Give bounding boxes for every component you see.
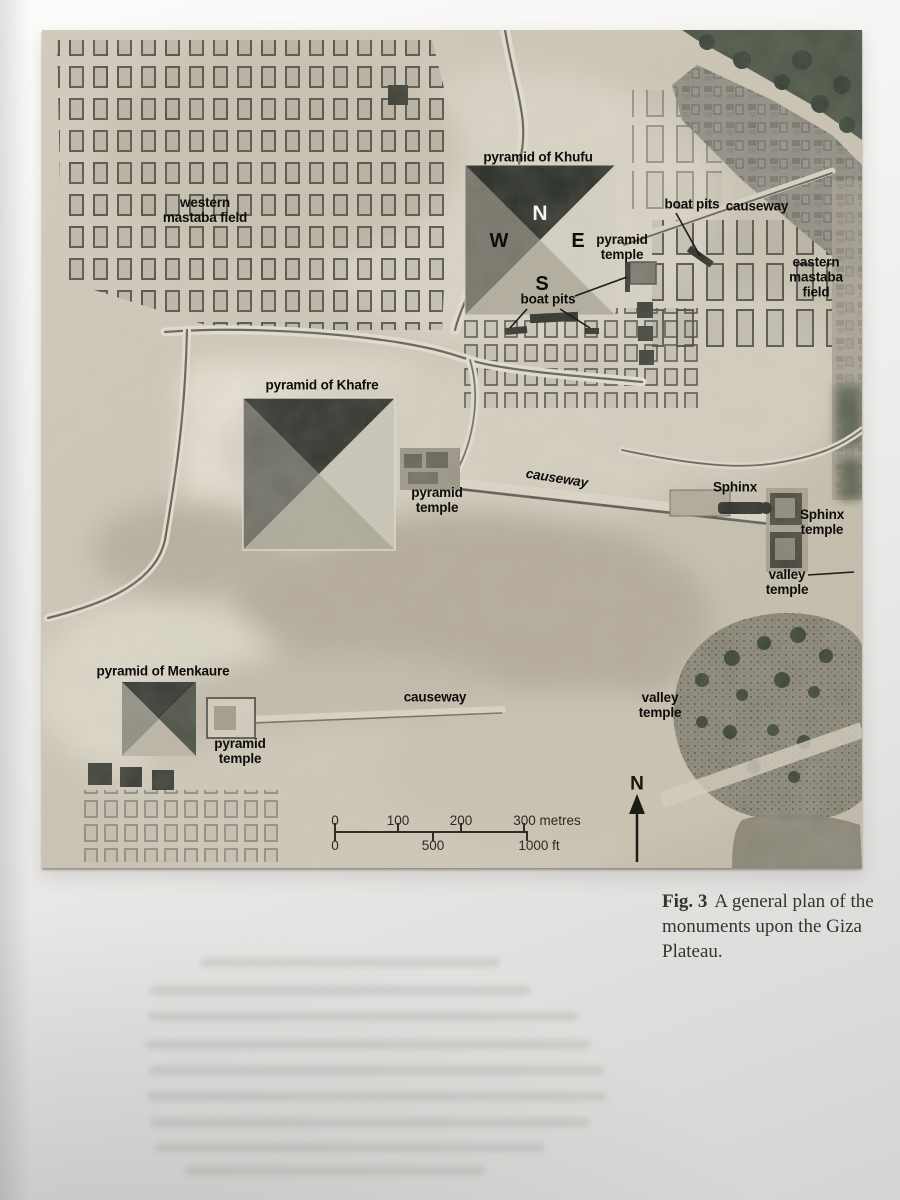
scale-label-100m: 100 bbox=[387, 814, 410, 828]
label-line: valley bbox=[639, 690, 682, 705]
scale-label-500ft: 500 bbox=[422, 839, 445, 853]
scale-label-300m: 300 metres bbox=[513, 814, 581, 828]
label-western-mastaba-field: western mastaba field bbox=[163, 195, 247, 225]
label-causeway-bottom: causeway bbox=[404, 690, 467, 705]
label-khufu-pyramid-temple: pyramid temple bbox=[596, 232, 647, 262]
label-line: mastaba field bbox=[163, 210, 247, 225]
book-page-photo: { "map": { "labels": { "khufu": "pyramid… bbox=[0, 0, 900, 1200]
label-line: eastern bbox=[789, 255, 843, 270]
label-causeway-top: causeway bbox=[726, 199, 789, 214]
label-boat-pits-south: boat pits bbox=[521, 292, 576, 307]
label-khafre-pyramid-temple: pyramid temple bbox=[411, 485, 462, 515]
label-line: temple bbox=[800, 522, 844, 537]
label-eastern-mastaba-field: eastern mastaba field bbox=[789, 255, 843, 300]
scale-label-1000ft: 1000 ft bbox=[518, 839, 559, 853]
label-line: pyramid bbox=[596, 232, 647, 247]
north-label: N bbox=[630, 775, 644, 794]
scale-label-0m: 0 bbox=[331, 814, 339, 828]
label-line: temple bbox=[596, 247, 647, 262]
label-line: temple bbox=[214, 751, 265, 766]
compass-east: E bbox=[571, 231, 584, 251]
compass-north: N bbox=[532, 204, 547, 224]
page-edge-shading bbox=[0, 0, 30, 1200]
label-line: temple bbox=[411, 500, 462, 515]
label-line: mastaba bbox=[789, 270, 843, 285]
scale-label-0ft: 0 bbox=[331, 839, 339, 853]
label-line: pyramid bbox=[214, 736, 265, 751]
label-line: valley bbox=[766, 567, 809, 582]
label-pyramid-of-menkaure: pyramid of Menkaure bbox=[97, 664, 230, 679]
compass-west: W bbox=[490, 231, 509, 251]
figure-caption: Fig. 3A general plan of the monuments up… bbox=[662, 889, 888, 964]
label-boat-pits-top: boat pits bbox=[665, 197, 720, 212]
label-valley-temple-bottom: valley temple bbox=[639, 690, 682, 720]
aerial-map-figure: pyramid of Khufu western mastaba field b… bbox=[42, 30, 862, 868]
label-line: pyramid bbox=[411, 485, 462, 500]
label-pyramid-of-khafre: pyramid of Khafre bbox=[266, 378, 379, 393]
label-line: field bbox=[789, 285, 843, 300]
label-line: Sphinx bbox=[800, 507, 844, 522]
scale-label-200m: 200 bbox=[450, 814, 473, 828]
terrain-svg bbox=[42, 30, 862, 868]
label-valley-temple-right: valley temple bbox=[766, 567, 809, 597]
label-line: temple bbox=[639, 705, 682, 720]
caption-fig-label: Fig. 3 bbox=[662, 891, 714, 912]
label-menkaure-pyramid-temple: pyramid temple bbox=[214, 736, 265, 766]
label-sphinx-temple: Sphinx temple bbox=[800, 507, 844, 537]
label-sphinx: Sphinx bbox=[713, 480, 757, 495]
label-line: temple bbox=[766, 582, 809, 597]
label-pyramid-of-khufu: pyramid of Khufu bbox=[483, 150, 592, 165]
label-line: western bbox=[163, 195, 247, 210]
